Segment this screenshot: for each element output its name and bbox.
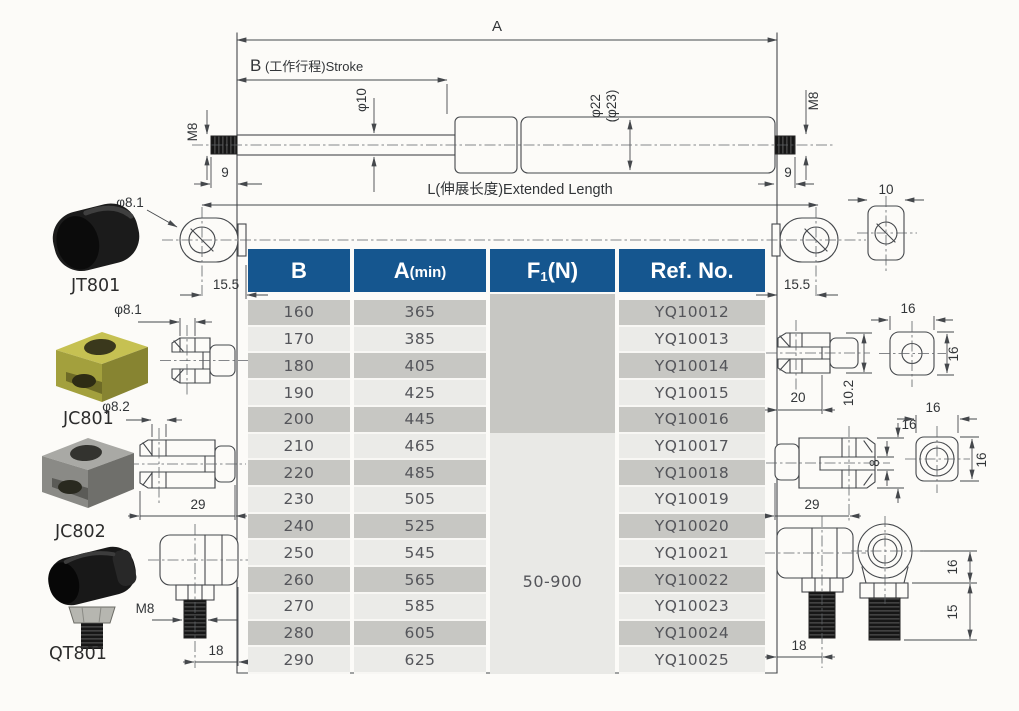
col-header-b: B [248, 249, 350, 292]
cell-a-min: 485 [354, 460, 486, 487]
column-f1n: 50-900 [490, 300, 615, 674]
cell-b: 250 [248, 540, 350, 567]
dim-qt801-length: 18 [208, 643, 223, 658]
svg-text:M8: M8 [806, 92, 821, 111]
cell-a-min: 385 [354, 327, 486, 354]
cell-ref: YQ10016 [619, 407, 765, 434]
cell-ref: YQ10014 [619, 353, 765, 380]
qt801-photo [44, 542, 141, 649]
svg-text:M8: M8 [185, 123, 200, 142]
cell-b: 270 [248, 594, 350, 621]
cell-ref: YQ10018 [619, 460, 765, 487]
cell-b: 230 [248, 487, 350, 514]
dim-jc802-length: 29 [190, 497, 205, 512]
f1-shaded-block [490, 294, 615, 433]
cell-ref: YQ10019 [619, 487, 765, 514]
svg-text:φ10: φ10 [354, 88, 369, 112]
cell-b: 290 [248, 647, 350, 674]
dim-clevis1-height: 10.2 [841, 380, 856, 406]
right-clevis2-drawing: 29 8 16 16 16 [763, 400, 989, 520]
dim-b-stroke: B (工作行程)Stroke [237, 56, 447, 114]
dim-eyelet-width-left: 15.5 [213, 277, 239, 292]
cell-b: 220 [248, 460, 350, 487]
spec-table: B A(min) F1(N) Ref. No. 1601701801902002… [248, 249, 765, 674]
dim-b-label: B (工作行程)Stroke [250, 56, 363, 75]
column-b: 1601701801902002102202302402502602702802… [248, 300, 350, 674]
column-ref-no: YQ10012YQ10013YQ10014YQ10015YQ10016YQ100… [619, 300, 765, 674]
table-body: 1601701801902002102202302402502602702802… [248, 300, 765, 674]
dim-ball-thread-length: 15 [945, 604, 960, 619]
dim-extended-length: L(伸展长度)Extended Length [202, 181, 818, 205]
right-ball-joint-drawing: 18 16 15 [763, 524, 977, 657]
header-f-label: F [527, 258, 540, 284]
cell-a-min: 545 [354, 540, 486, 567]
cell-b: 180 [248, 353, 350, 380]
cell-ref: YQ10015 [619, 380, 765, 407]
svg-text:φ22: φ22 [588, 94, 603, 118]
cell-a-min: 425 [354, 380, 486, 407]
jc801-photo [56, 332, 148, 402]
column-a-min: 3653854054254454654855055255455655856056… [354, 300, 486, 674]
cell-a-min: 405 [354, 353, 486, 380]
dim-clevis2-front-w: 16 [925, 400, 940, 415]
cell-ref: YQ10012 [619, 300, 765, 327]
cell-ref: YQ10023 [619, 594, 765, 621]
header-b-label: B [291, 258, 307, 284]
dim-jc801-hole: φ8.1 [114, 302, 142, 317]
cell-b: 200 [248, 407, 350, 434]
dim-qt801-thread: M8 [136, 601, 155, 616]
svg-text:L(伸展长度)Extended Length: L(伸展长度)Extended Length [427, 181, 612, 198]
svg-text:(φ23): (φ23) [604, 90, 619, 123]
dim-clevis1-front-w: 16 [900, 301, 915, 316]
label-qt801: QT801 [49, 644, 107, 664]
cell-ref: YQ10017 [619, 434, 765, 461]
header-f-subscript: 1 [540, 269, 547, 284]
cell-a-min: 445 [354, 407, 486, 434]
cell-ref: YQ10024 [619, 621, 765, 648]
cell-a-min: 605 [354, 621, 486, 648]
label-jt801: JT801 [70, 276, 120, 296]
cell-ref: YQ10025 [619, 647, 765, 674]
dim-9-left: 9 [221, 165, 229, 180]
cell-b: 190 [248, 380, 350, 407]
cell-b: 260 [248, 567, 350, 594]
dim-clevis2-length: 29 [804, 497, 819, 512]
cell-ref: YQ10022 [619, 567, 765, 594]
cell-ref: YQ10013 [619, 327, 765, 354]
right-eyelet-drawing: 15.5 10 [756, 182, 924, 295]
header-a-suffix: (min) [410, 264, 447, 281]
f1-value: 50-900 [490, 572, 615, 591]
cell-a-min: 565 [354, 567, 486, 594]
dim-clevis1-front-h: 16 [946, 346, 961, 361]
label-jc801: JC801 [62, 409, 114, 429]
dim-a-label: A [492, 18, 502, 35]
cell-b: 280 [248, 621, 350, 648]
header-a-label: A [394, 258, 410, 284]
col-header-ref-no: Ref. No. [619, 249, 765, 292]
cell-ref: YQ10020 [619, 514, 765, 541]
dim-eyelet-width-right: 15.5 [784, 277, 810, 292]
cell-b: 160 [248, 300, 350, 327]
dim-clevis1-depth: 20 [790, 390, 805, 405]
dim-ball-center-height: 16 [945, 559, 960, 574]
label-jc802: JC802 [54, 522, 106, 542]
cell-ref: YQ10021 [619, 540, 765, 567]
header-f-suffix: (N) [548, 258, 579, 284]
col-header-f1n: F1(N) [490, 249, 615, 292]
cell-a-min: 505 [354, 487, 486, 514]
cell-b: 240 [248, 514, 350, 541]
spec-sheet: .ln{stroke:#45484c;stroke-width:1.1;fill… [0, 0, 1019, 711]
dim-ball-length: 18 [791, 638, 806, 653]
dim-a: A [237, 18, 777, 40]
dim-9-right: 9 [784, 165, 792, 180]
table-header-row: B A(min) F1(N) Ref. No. [248, 249, 765, 292]
cell-a-min: 365 [354, 300, 486, 327]
jc802-photo [42, 438, 134, 508]
left-eyelet-drawing: φ8.1 15.5 [116, 195, 268, 299]
cell-a-min: 465 [354, 434, 486, 461]
cell-a-min: 585 [354, 594, 486, 621]
cell-b: 170 [248, 327, 350, 354]
header-ref-label: Ref. No. [650, 258, 733, 284]
cell-a-min: 525 [354, 514, 486, 541]
cell-b: 210 [248, 434, 350, 461]
dim-clevis2-front-h: 16 [974, 452, 989, 467]
qt801-drawing: M8 18 [136, 535, 250, 666]
col-header-a-min: A(min) [354, 249, 486, 292]
right-clevis1-drawing: 20 10.2 16 16 [765, 301, 961, 414]
dim-eyelet-thickness: 10 [878, 182, 893, 197]
cell-a-min: 625 [354, 647, 486, 674]
f1-light-block [490, 433, 615, 674]
